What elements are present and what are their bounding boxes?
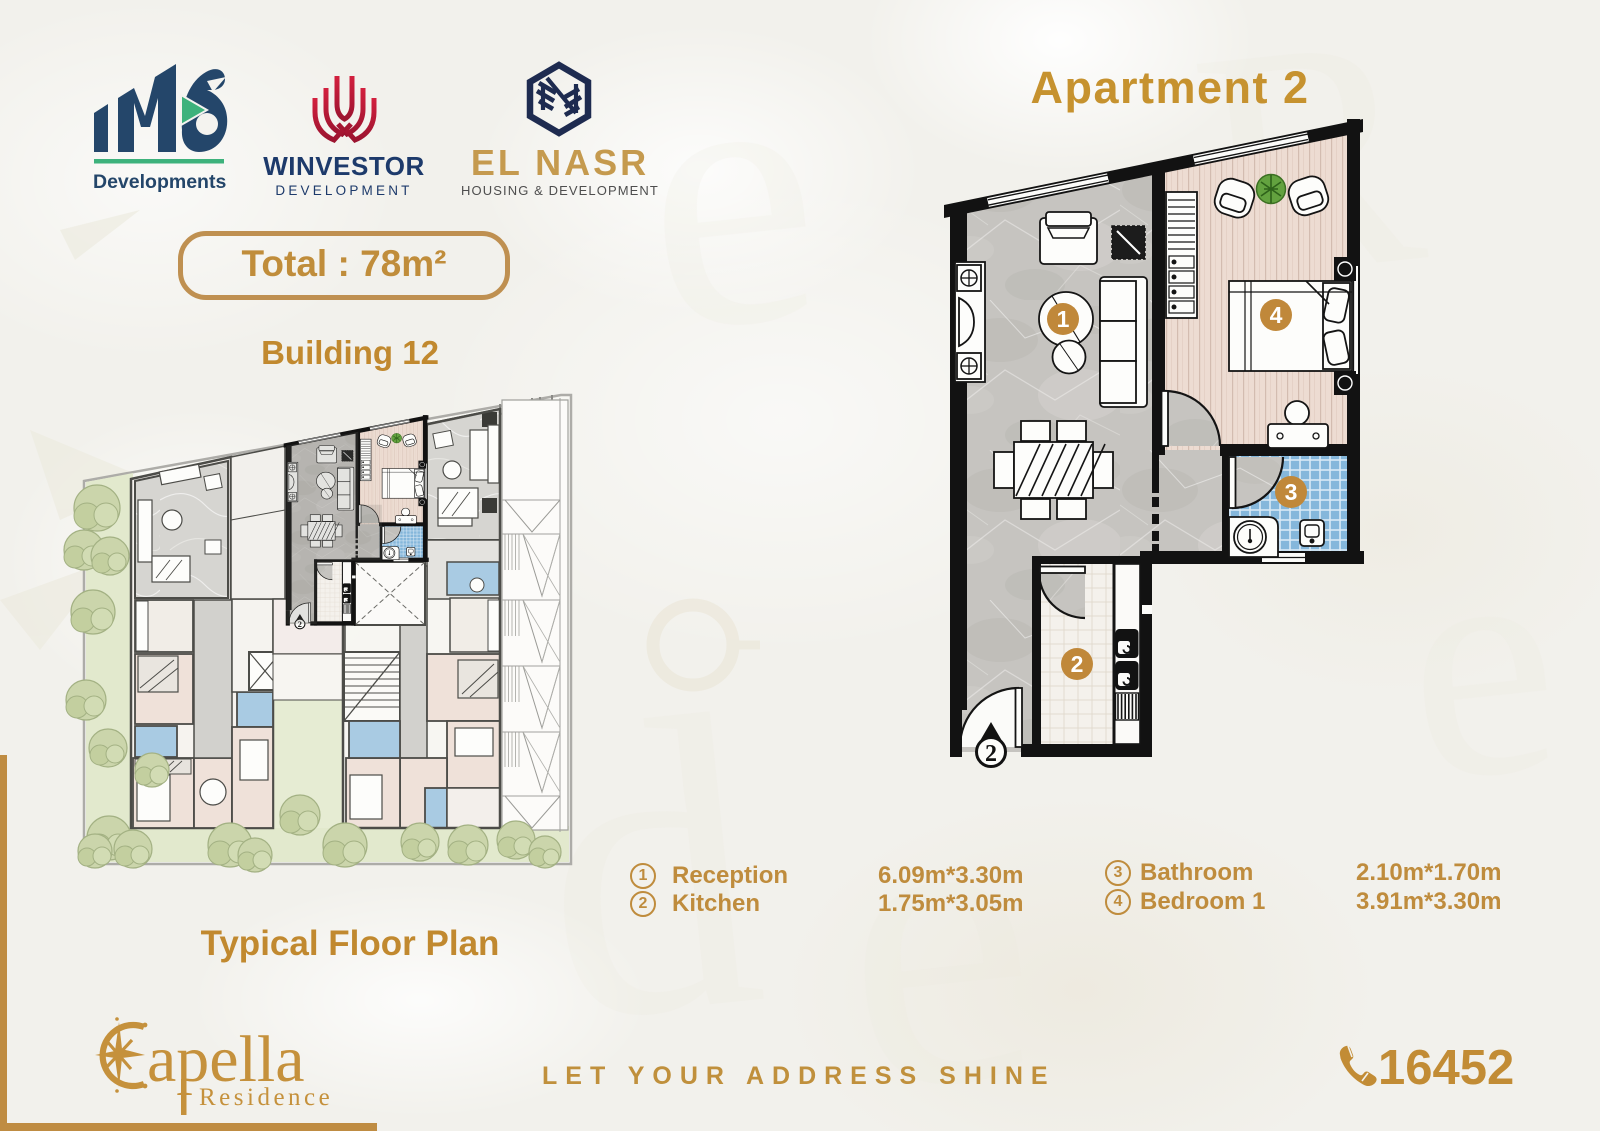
svg-text:Residence: Residence xyxy=(199,1084,333,1111)
svg-text:16452: 16452 xyxy=(1378,1041,1514,1095)
